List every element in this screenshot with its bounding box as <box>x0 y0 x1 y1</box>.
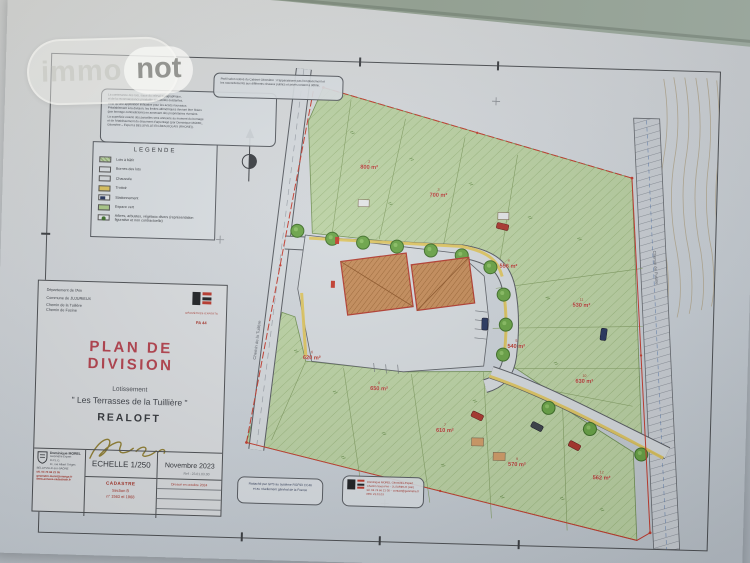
fold-tick <box>359 57 361 66</box>
legend-item: Trottoir <box>98 185 209 194</box>
scale-label: ECHELLE 1/250 <box>85 450 157 479</box>
cadastre-cell: CADASTRE Section B n° 1563 et 1968 <box>84 477 156 518</box>
note-line: et au nivellement général de la France <box>244 486 316 493</box>
geometre-logo-icon <box>193 292 212 306</box>
org-ref: PA 44 <box>185 319 218 325</box>
plan-subtitle-name: " Les Terrasses de la Tuillière " <box>43 393 215 408</box>
note-bottom-right-text: Dominique MOREL Géomètre-ExpertChemin So… <box>366 480 419 498</box>
building-1 <box>341 253 413 315</box>
fold-tick <box>241 532 243 541</box>
org-caption: GÉOMÈTRES-EXPERTS <box>185 311 218 315</box>
surveyor-contacts: tél. 04 74 66 21 05geometre.morel@orange… <box>36 470 81 483</box>
legend-item: Lots à bâtir <box>99 156 210 165</box>
title-block: Département de l'Ain Commune de JUJURIEU… <box>31 280 227 517</box>
watermark-not-text: not <box>136 51 182 84</box>
immonot-watermark: immo not <box>26 36 180 106</box>
legend-label: Trottoir <box>115 186 126 191</box>
trottoir-swatch-icon <box>98 185 110 191</box>
fold-tick <box>518 540 520 549</box>
legend-rows: Lots à bâtirBornes des lotsChausséeTrott… <box>98 156 211 225</box>
photo-of-plan: Chemin de Fusine <box>0 0 750 563</box>
plan-subtitle-developer: REALOFT <box>43 409 215 426</box>
note-line: www.annexe-cadastrale.fr <box>36 478 81 483</box>
legend-item: Chaussée <box>99 175 210 184</box>
date-label: Novembre 2023 <box>157 452 222 481</box>
surveyor-contact-cell: Dominique MOREL Géomètre Expert D.P.L.G.… <box>32 449 86 516</box>
legend-item: Espace vert <box>98 204 209 213</box>
note-top-center: Profil selon relevé du Cabinet Géomètre … <box>213 72 344 101</box>
surveyor-org: GÉOMÈTRES-EXPERTS PA 44 <box>185 292 219 325</box>
legend-title: LEGENDE <box>99 146 210 155</box>
legend-label: Arbres, arbustes, végétaux divers (repré… <box>115 214 209 226</box>
building-2 <box>411 257 474 310</box>
note-bottom-left: Rattaché par GPS au système RGF93 CC46et… <box>237 476 324 505</box>
legend-label: Stationnement <box>115 195 138 200</box>
legend-item: Stationnement <box>98 194 209 203</box>
commune: Commune de JUJURIEUX <box>46 295 91 300</box>
legend-box: LEGENDE Lots à bâtirBornes des lotsChaus… <box>90 141 218 240</box>
geometre-logo-icon <box>347 479 364 489</box>
revision-row-empty: . <box>156 509 220 520</box>
legend-item: Bornes des lots <box>99 166 210 175</box>
watermark-immo-text: immo <box>41 54 123 89</box>
chaussee-swatch-icon <box>99 175 111 181</box>
legend-label: Bornes des lots <box>116 167 141 172</box>
lots-swatch-icon <box>99 156 111 162</box>
surveyor-crest-icon <box>37 451 48 464</box>
legend-item: Arbres, arbustes, végétaux divers (repré… <box>98 213 209 225</box>
fold-tick <box>497 61 499 70</box>
fold-tick <box>41 233 50 235</box>
project-location-lines: Département de l'Ain Commune de JUJURIEU… <box>46 288 92 322</box>
note-bottom-right: Dominique MOREL Géomètre-ExpertChemin So… <box>342 475 425 508</box>
address-line-2: Chemin de Fusine <box>46 308 91 313</box>
bornes-swatch-icon <box>99 166 111 172</box>
cadastre-parcels: n° 1563 et 1968 <box>85 493 156 500</box>
legend-label: Lots à bâtir <box>116 157 134 162</box>
espace-vert-swatch-icon <box>98 204 110 210</box>
watermark-not-pill: not <box>124 45 194 94</box>
legend-label: Chaussée <box>116 176 132 181</box>
stationnement-swatch-icon <box>98 194 110 200</box>
legend-label: Espace vert <box>115 205 134 210</box>
plan-title: PLAN DE DIVISION <box>44 336 217 375</box>
fold-tick <box>379 536 381 545</box>
department: Département de l'Ain <box>47 288 92 293</box>
arbres-swatch-icon <box>98 215 110 221</box>
